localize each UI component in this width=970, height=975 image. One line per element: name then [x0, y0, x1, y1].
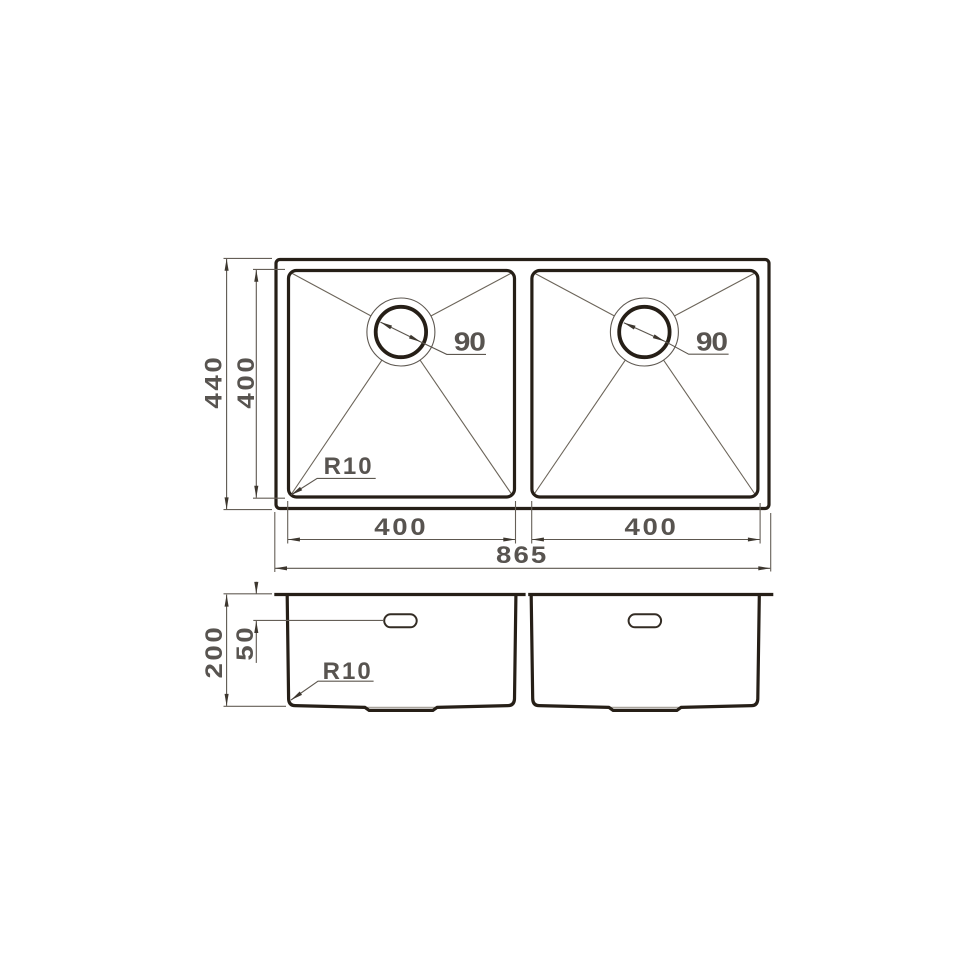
- svg-text:R10: R10: [323, 658, 373, 685]
- svg-text:90: 90: [696, 327, 727, 356]
- svg-text:400: 400: [233, 355, 259, 409]
- svg-text:90: 90: [454, 327, 485, 356]
- svg-text:865: 865: [496, 542, 548, 568]
- svg-text:50: 50: [232, 625, 258, 661]
- svg-text:200: 200: [201, 625, 227, 679]
- svg-text:R10: R10: [324, 453, 374, 480]
- svg-text:440: 440: [201, 355, 227, 409]
- svg-text:400: 400: [625, 515, 679, 541]
- svg-text:400: 400: [374, 514, 428, 540]
